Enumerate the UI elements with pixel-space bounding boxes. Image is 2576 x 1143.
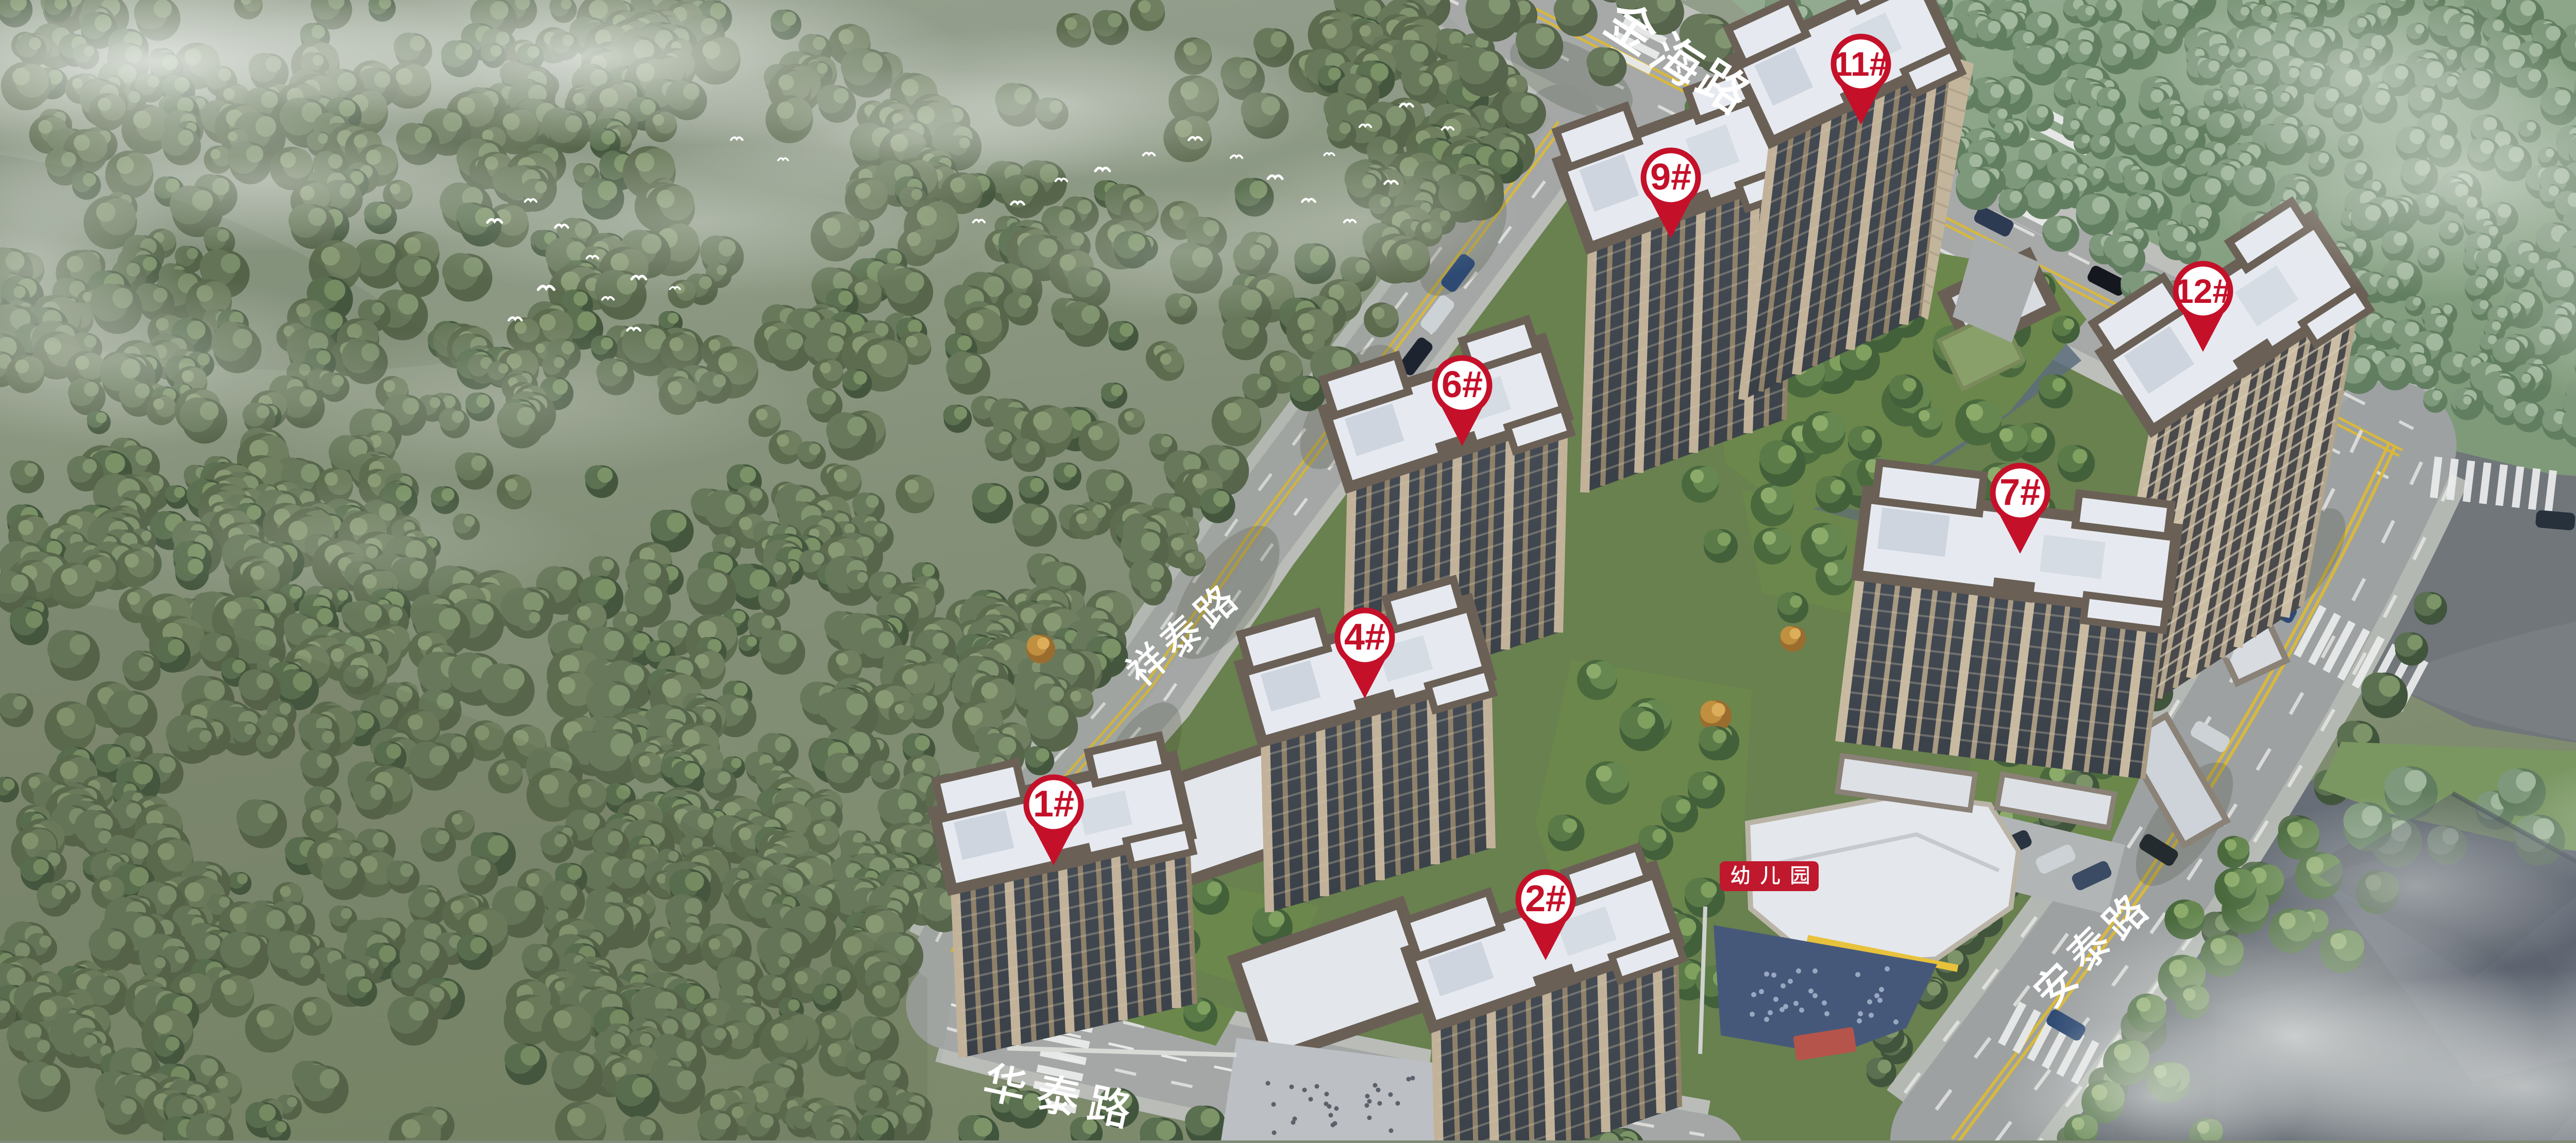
- svg-text:1#: 1#: [1033, 783, 1074, 825]
- svg-text:2#: 2#: [1525, 878, 1566, 919]
- svg-text:11#: 11#: [1834, 45, 1888, 83]
- svg-text:4#: 4#: [1344, 617, 1385, 658]
- svg-text:7#: 7#: [1999, 472, 2041, 513]
- svg-text:9#: 9#: [1650, 157, 1691, 198]
- svg-text:12#: 12#: [2175, 272, 2231, 310]
- svg-text:6#: 6#: [1442, 364, 1483, 405]
